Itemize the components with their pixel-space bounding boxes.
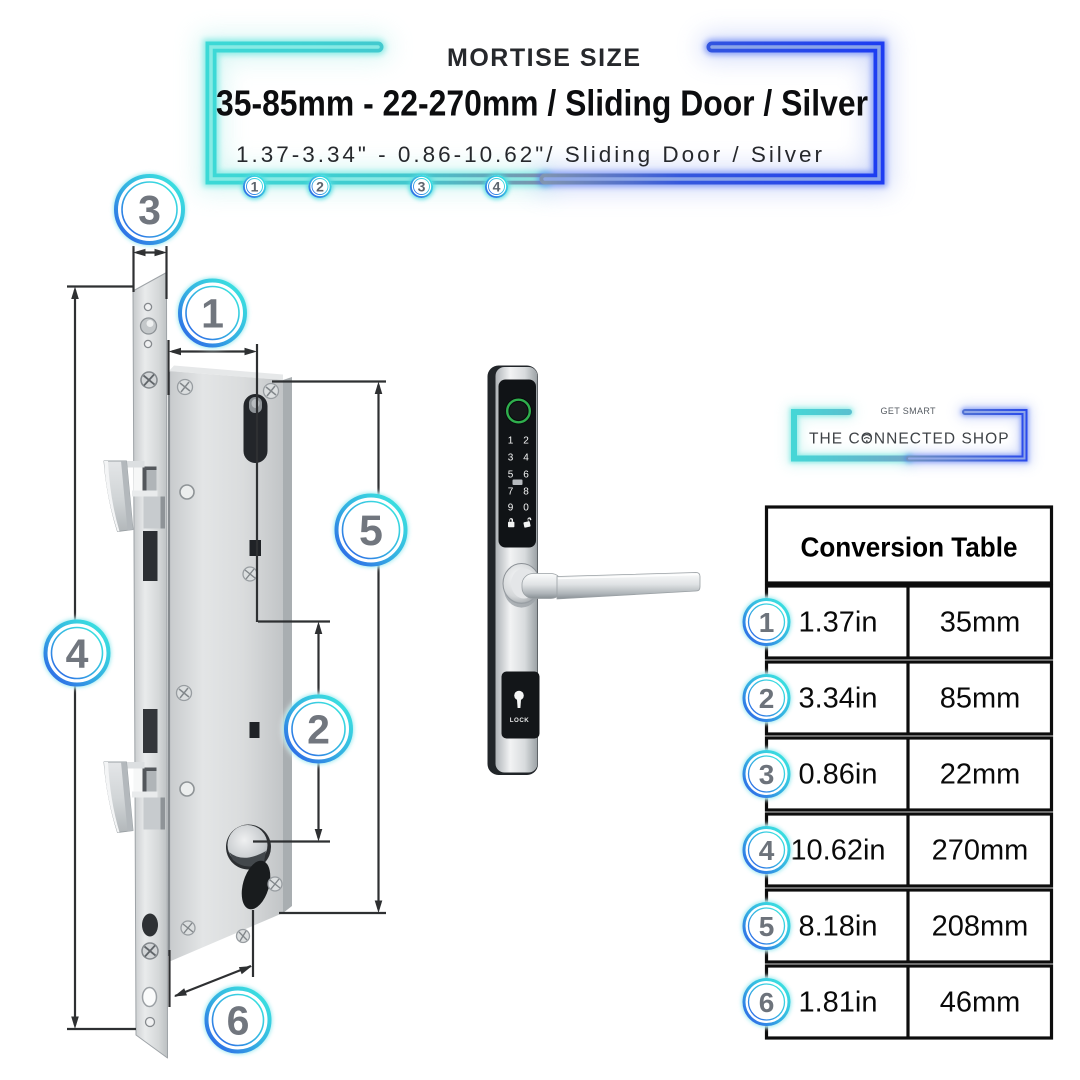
svg-text:35mm: 35mm — [940, 607, 1021, 639]
svg-text:3: 3 — [508, 453, 514, 464]
svg-text:4: 4 — [493, 179, 501, 195]
svg-text:8.18in: 8.18in — [798, 911, 877, 943]
svg-text:1: 1 — [201, 291, 224, 337]
svg-text:4: 4 — [66, 631, 89, 677]
svg-text:6: 6 — [227, 998, 250, 1044]
svg-text:1.81in: 1.81in — [798, 987, 877, 1019]
svg-text:270mm: 270mm — [932, 835, 1029, 867]
svg-text:1.37in: 1.37in — [798, 607, 877, 639]
svg-text:2: 2 — [307, 707, 330, 753]
svg-text:0.86in: 0.86in — [798, 759, 877, 791]
svg-text:35-85mm - 22-270mm / Sliding D: 35-85mm - 22-270mm / Sliding Door / Silv… — [216, 83, 868, 124]
svg-text:2: 2 — [316, 179, 324, 195]
svg-text:2: 2 — [759, 683, 775, 714]
svg-text:5: 5 — [508, 470, 514, 481]
svg-text:4: 4 — [523, 453, 529, 464]
svg-text:8: 8 — [523, 486, 529, 497]
svg-text:1: 1 — [759, 607, 775, 638]
svg-text:6: 6 — [759, 987, 775, 1018]
svg-text:1: 1 — [508, 436, 514, 447]
svg-text:MORTISE SIZE: MORTISE SIZE — [447, 44, 640, 72]
svg-text:208mm: 208mm — [932, 911, 1029, 943]
svg-text:5: 5 — [359, 507, 383, 555]
svg-text:0: 0 — [523, 503, 529, 514]
svg-text:LOCK: LOCK — [510, 717, 530, 724]
svg-text:GET SMART: GET SMART — [881, 406, 937, 416]
svg-text:7: 7 — [508, 486, 514, 497]
svg-text:9: 9 — [508, 503, 514, 514]
svg-text:2: 2 — [523, 436, 529, 447]
svg-text:5: 5 — [759, 911, 775, 942]
svg-text:3: 3 — [418, 179, 426, 195]
svg-text:4: 4 — [759, 835, 775, 866]
svg-text:3: 3 — [138, 187, 161, 233]
svg-text:3.34in: 3.34in — [798, 683, 877, 715]
svg-text:10.62in: 10.62in — [790, 835, 885, 867]
svg-text:Conversion Table: Conversion Table — [801, 532, 1018, 563]
svg-text:6: 6 — [523, 470, 529, 481]
svg-text:46mm: 46mm — [940, 987, 1021, 1019]
svg-text:22mm: 22mm — [940, 759, 1021, 791]
svg-text:THE CONNECTED SHOP: THE CONNECTED SHOP — [809, 431, 1010, 448]
svg-text:85mm: 85mm — [940, 683, 1021, 715]
svg-text:1: 1 — [251, 179, 259, 195]
svg-text:3: 3 — [759, 759, 775, 790]
